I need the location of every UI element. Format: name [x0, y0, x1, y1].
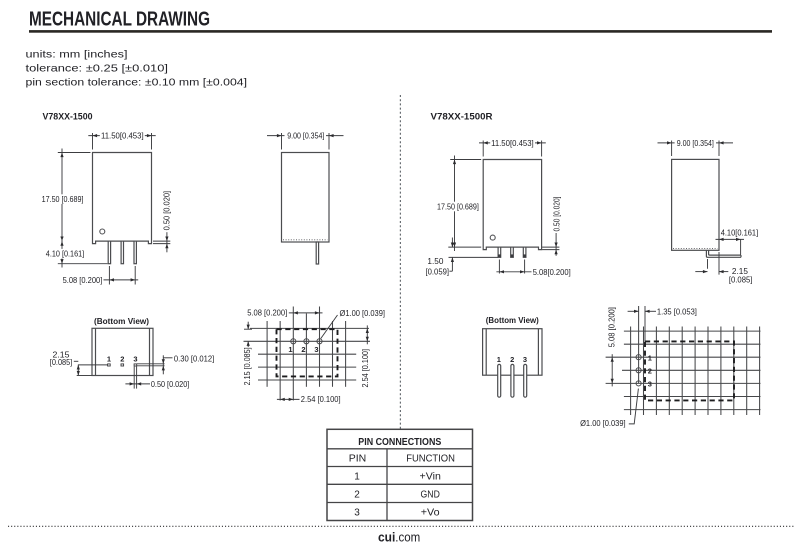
svg-text:5.08[0.200]: 5.08[0.200] — [533, 268, 571, 277]
svg-text:0.30 [0.012]: 0.30 [0.012] — [174, 354, 214, 363]
svg-text:5.08 [0.200]: 5.08 [0.200] — [63, 276, 103, 285]
svg-text:+Vo: +Vo — [421, 508, 440, 519]
svg-text:4.10 [0.161]: 4.10 [0.161] — [46, 249, 84, 258]
svg-text:(Bottom View): (Bottom View) — [486, 316, 539, 325]
svg-text:[0.085]: [0.085] — [729, 276, 753, 285]
svg-text:pin section tolerance: ±0.10 m: pin section tolerance: ±0.10 mm [±0.004] — [26, 77, 248, 89]
svg-text:units: mm [inches]: units: mm [inches] — [26, 49, 128, 61]
svg-text:3: 3 — [314, 345, 318, 354]
svg-text:V78XX-1500R: V78XX-1500R — [431, 112, 493, 123]
svg-text:1: 1 — [648, 353, 652, 362]
svg-text:3: 3 — [133, 354, 137, 363]
svg-text:1: 1 — [354, 472, 360, 483]
svg-text:2.54 [0.100]: 2.54 [0.100] — [301, 395, 341, 404]
svg-text:PIN CONNECTIONS: PIN CONNECTIONS — [358, 436, 441, 448]
svg-text:GND: GND — [421, 490, 440, 501]
svg-text:1: 1 — [107, 354, 111, 363]
svg-text:cui.com: cui.com — [378, 530, 420, 544]
svg-text:17.50 [0.689]: 17.50 [0.689] — [437, 202, 479, 211]
svg-text:0.50 [0.020]: 0.50 [0.020] — [553, 197, 562, 232]
svg-text:1: 1 — [288, 345, 292, 354]
svg-text:0.50 [0.020]: 0.50 [0.020] — [151, 380, 189, 389]
svg-text:11.50[0.453]: 11.50[0.453] — [491, 139, 534, 148]
svg-text:FUNCTION: FUNCTION — [406, 454, 455, 465]
svg-text:2: 2 — [648, 367, 652, 376]
svg-text:3: 3 — [648, 380, 652, 389]
svg-text:PIN: PIN — [349, 454, 367, 465]
svg-text:2.15 [0.085]: 2.15 [0.085] — [243, 347, 252, 385]
svg-text:9.00 [0.354]: 9.00 [0.354] — [287, 132, 324, 141]
svg-text:V78XX-1500: V78XX-1500 — [43, 112, 93, 123]
svg-text:MECHANICAL DRAWING: MECHANICAL DRAWING — [29, 9, 210, 31]
svg-text:[0.059]: [0.059] — [426, 268, 450, 277]
svg-text:11.50[0.453]: 11.50[0.453] — [101, 132, 144, 141]
svg-text:3: 3 — [354, 508, 360, 519]
svg-text:2: 2 — [301, 345, 305, 354]
svg-text:0.50 [0.020]: 0.50 [0.020] — [162, 191, 171, 231]
svg-text:(Bottom View): (Bottom View) — [94, 317, 149, 326]
svg-text:2: 2 — [120, 354, 124, 363]
svg-text:1.50: 1.50 — [427, 257, 444, 266]
svg-text:2: 2 — [510, 355, 514, 364]
svg-text:5.08 [0.200]: 5.08 [0.200] — [247, 308, 287, 317]
svg-text:3: 3 — [523, 355, 527, 364]
svg-text:2.54 [0.100]: 2.54 [0.100] — [361, 349, 370, 388]
svg-text:4.10[0.161]: 4.10[0.161] — [721, 228, 759, 237]
svg-text:2: 2 — [354, 490, 360, 501]
svg-text:Ø1.00 [0.039]: Ø1.00 [0.039] — [340, 309, 386, 318]
svg-text:17.50 [0.689]: 17.50 [0.689] — [42, 195, 84, 204]
svg-text:5.08 [0.200]: 5.08 [0.200] — [607, 307, 616, 347]
svg-text:9.00 [0.354]: 9.00 [0.354] — [677, 139, 714, 148]
svg-text:tolerance: ±0.25 [±0.010]: tolerance: ±0.25 [±0.010] — [26, 63, 169, 75]
svg-text:[0.085]: [0.085] — [50, 358, 72, 367]
svg-text:+Vin: +Vin — [420, 472, 441, 483]
svg-text:Ø1.00 [0.039]: Ø1.00 [0.039] — [580, 419, 626, 428]
svg-text:1: 1 — [497, 355, 501, 364]
svg-text:1.35 [0.053]: 1.35 [0.053] — [657, 307, 697, 316]
